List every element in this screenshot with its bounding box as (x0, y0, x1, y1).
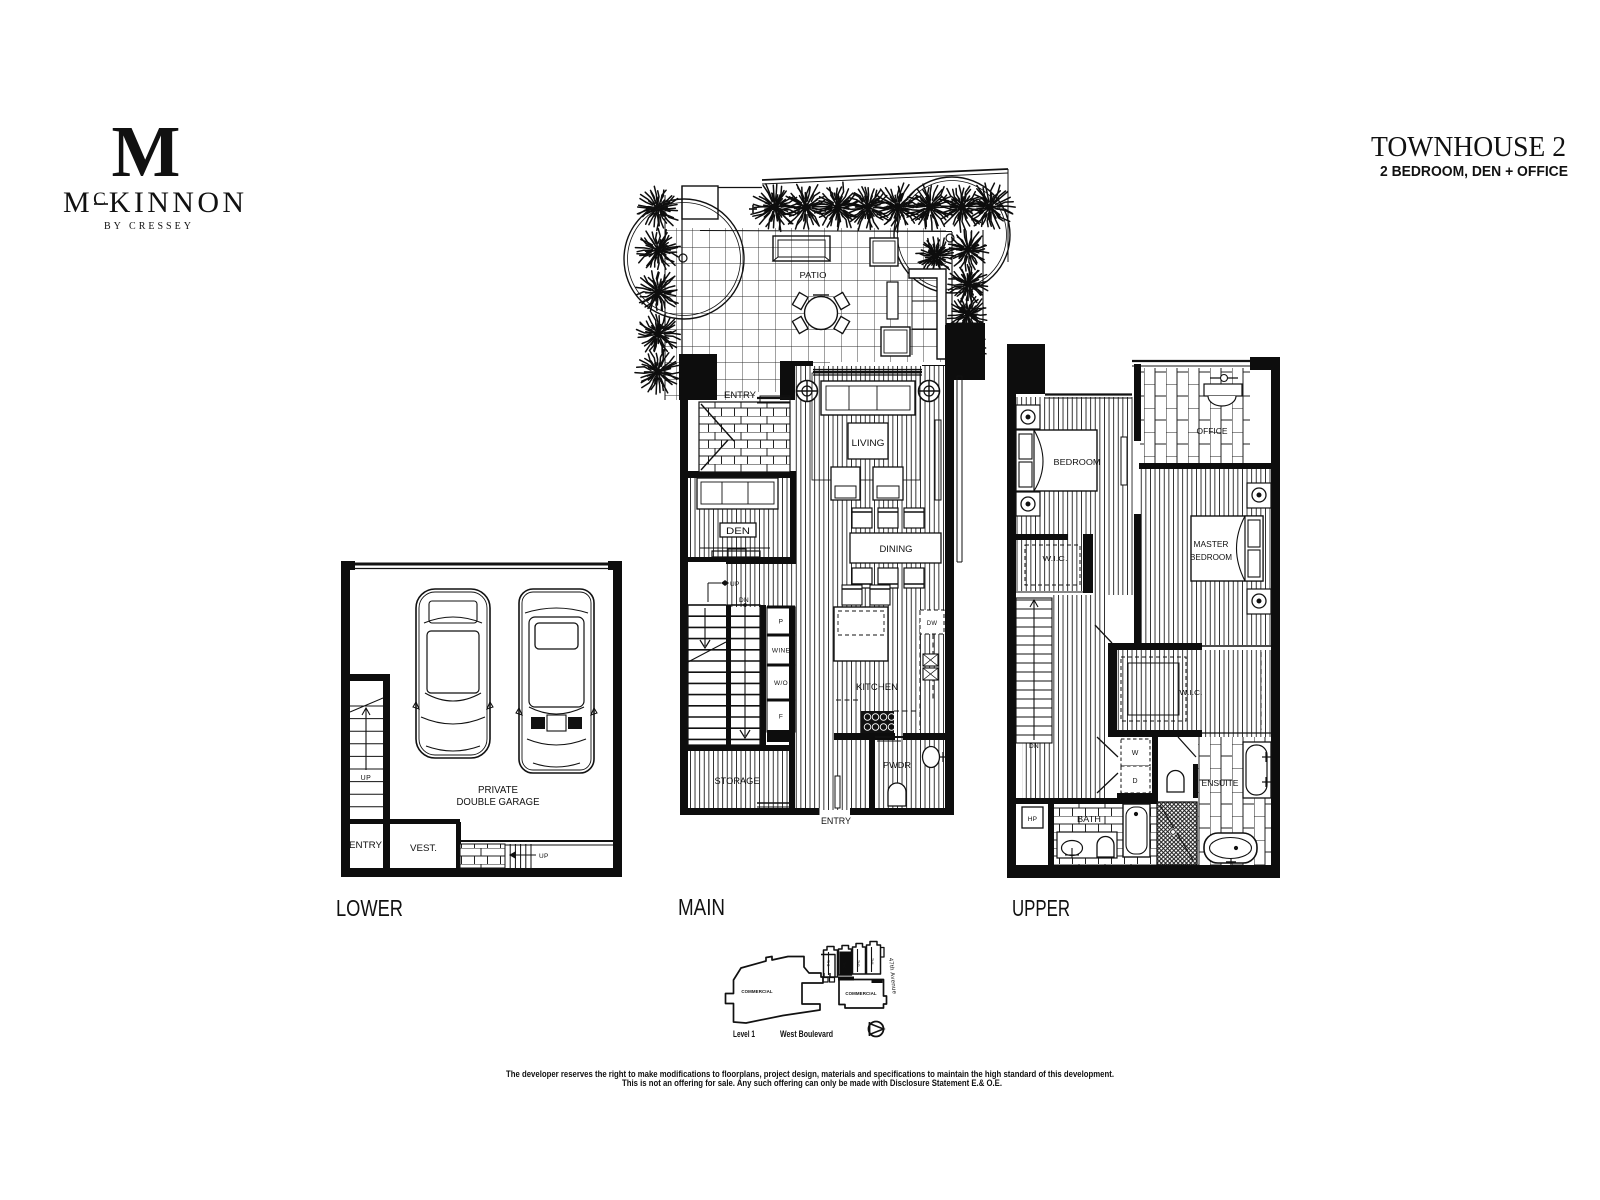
svg-text:BEDROOM: BEDROOM (1054, 457, 1101, 467)
svg-text:TH4: TH4 (870, 958, 874, 965)
svg-text:UP: UP (361, 775, 372, 782)
svg-text:W/O: W/O (774, 680, 788, 687)
svg-text:BATH: BATH (1077, 814, 1101, 824)
svg-text:MAIN: MAIN (678, 894, 725, 920)
svg-text:TH1: TH1 (826, 960, 830, 967)
svg-text:LOWER: LOWER (336, 895, 403, 921)
svg-text:This is not an offering for sa: This is not an offering for sale. Any su… (622, 1078, 1002, 1088)
svg-text:UP: UP (730, 581, 740, 588)
svg-text:F: F (779, 714, 783, 721)
svg-text:KITCHEN: KITCHEN (856, 682, 898, 692)
svg-text:BY CRESSEY: BY CRESSEY (104, 221, 194, 232)
svg-text:DW: DW (927, 621, 938, 627)
svg-text:MASTER: MASTER (1194, 539, 1229, 549)
svg-text:DINING: DINING (880, 544, 913, 554)
svg-text:WINE: WINE (772, 648, 791, 655)
svg-text:P: P (779, 619, 784, 626)
svg-text:VEST.: VEST. (410, 843, 437, 854)
svg-text:ENTRY: ENTRY (349, 840, 383, 851)
svg-text:2 BEDROOM, DEN + OFFICE: 2 BEDROOM, DEN + OFFICE (1380, 164, 1568, 180)
svg-text:W.I.C.: W.I.C. (1043, 554, 1068, 563)
svg-text:PATIO: PATIO (800, 271, 827, 280)
svg-text:BEDROOM: BEDROOM (1190, 552, 1232, 562)
svg-text:PWDR: PWDR (883, 760, 911, 770)
svg-text:LIVING: LIVING (852, 438, 885, 448)
svg-text:UP: UP (539, 853, 549, 860)
svg-text:COMMERCIAL: COMMERCIAL (741, 989, 772, 994)
svg-text:UPPER: UPPER (1012, 895, 1070, 921)
svg-text:PRIVATE: PRIVATE (478, 785, 518, 796)
svg-text:STORAGE: STORAGE (715, 776, 760, 786)
svg-text:M: M (112, 111, 181, 192)
svg-text:TOWNHOUSE 2: TOWNHOUSE 2 (1371, 132, 1566, 163)
svg-text:West Boulevard: West Boulevard (780, 1029, 833, 1039)
svg-text:ENSUITE: ENSUITE (1202, 778, 1239, 788)
svg-text:D: D (1132, 778, 1137, 785)
svg-text:DN: DN (739, 597, 749, 604)
svg-text:DN: DN (1029, 743, 1039, 750)
svg-text:W.I.C.: W.I.C. (1180, 688, 1203, 697)
svg-text:TH3: TH3 (856, 960, 860, 967)
svg-text:Level 1: Level 1 (733, 1029, 755, 1039)
svg-text:HP: HP (1028, 816, 1037, 823)
svg-text:COMMERCIAL: COMMERCIAL (845, 991, 876, 996)
svg-text:MCKINNON: MCKINNON (63, 186, 247, 219)
svg-text:W: W (1132, 750, 1139, 757)
svg-text:TH2: TH2 (842, 962, 846, 969)
svg-text:ENTRY: ENTRY (724, 390, 756, 400)
svg-text:DEN: DEN (726, 526, 750, 536)
svg-text:ENTRY: ENTRY (821, 816, 852, 827)
svg-text:DOUBLE GARAGE: DOUBLE GARAGE (457, 797, 540, 808)
svg-text:OFFICE: OFFICE (1197, 426, 1228, 436)
